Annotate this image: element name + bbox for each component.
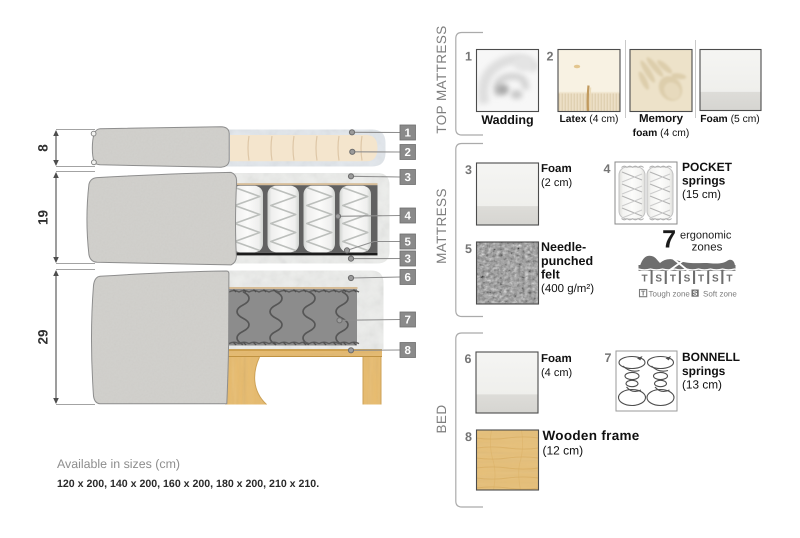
svg-text:T: T bbox=[670, 274, 676, 285]
svg-text:T: T bbox=[642, 274, 648, 285]
svg-text:Available in sizes (cm): Available in sizes (cm) bbox=[57, 457, 180, 471]
svg-text:springs: springs bbox=[682, 364, 726, 378]
svg-text:19: 19 bbox=[36, 210, 51, 225]
svg-text:POCKET: POCKET bbox=[682, 160, 733, 174]
svg-text:S: S bbox=[693, 291, 698, 298]
svg-text:(13 cm): (13 cm) bbox=[682, 377, 722, 391]
svg-text:felt: felt bbox=[541, 267, 561, 281]
svg-text:3: 3 bbox=[465, 163, 472, 177]
svg-text:6: 6 bbox=[404, 272, 410, 284]
svg-text:3: 3 bbox=[404, 254, 410, 266]
svg-text:foam (4 cm): foam (4 cm) bbox=[633, 128, 690, 139]
svg-text:7: 7 bbox=[605, 351, 612, 365]
svg-text:7: 7 bbox=[404, 315, 410, 327]
svg-text:BONNELL: BONNELL bbox=[682, 350, 740, 364]
svg-text:MATTRESS: MATTRESS bbox=[434, 188, 449, 264]
svg-text:S: S bbox=[684, 274, 691, 285]
svg-text:8: 8 bbox=[404, 345, 411, 357]
svg-text:TOP MATTRESS: TOP MATTRESS bbox=[434, 25, 449, 133]
svg-text:4: 4 bbox=[404, 211, 411, 223]
svg-text:5: 5 bbox=[404, 237, 411, 249]
svg-text:Soft zone: Soft zone bbox=[703, 290, 737, 299]
svg-text:Memory: Memory bbox=[639, 113, 684, 125]
svg-text:BED: BED bbox=[434, 405, 449, 434]
svg-text:5: 5 bbox=[465, 242, 472, 256]
svg-text:ergonomic: ergonomic bbox=[680, 230, 732, 242]
svg-text:springs: springs bbox=[682, 174, 726, 188]
svg-text:8: 8 bbox=[465, 430, 472, 444]
svg-text:2: 2 bbox=[547, 50, 554, 64]
svg-text:(12 cm): (12 cm) bbox=[543, 444, 584, 458]
svg-text:Foam: Foam bbox=[541, 353, 572, 365]
svg-text:Wadding: Wadding bbox=[481, 113, 533, 127]
svg-text:T: T bbox=[641, 291, 646, 298]
svg-text:120 x 200, 140 x 200, 160 x 20: 120 x 200, 140 x 200, 160 x 200, 180 x 2… bbox=[57, 478, 319, 490]
svg-text:(15 cm): (15 cm) bbox=[682, 189, 721, 201]
svg-text:Tough zone: Tough zone bbox=[649, 290, 691, 299]
svg-text:T: T bbox=[726, 274, 732, 285]
svg-text:7: 7 bbox=[662, 226, 676, 254]
svg-text:2: 2 bbox=[404, 147, 410, 159]
svg-text:(400 g/m²): (400 g/m²) bbox=[541, 283, 594, 295]
svg-text:Needle-: Needle- bbox=[541, 240, 586, 254]
svg-text:3: 3 bbox=[404, 172, 410, 184]
svg-text:punched: punched bbox=[541, 254, 593, 268]
svg-text:Wooden frame: Wooden frame bbox=[543, 428, 640, 443]
svg-text:zones: zones bbox=[692, 242, 723, 254]
svg-text:S: S bbox=[712, 274, 719, 285]
svg-text:4: 4 bbox=[604, 162, 611, 176]
svg-text:1: 1 bbox=[404, 128, 411, 140]
svg-text:Latex (4 cm): Latex (4 cm) bbox=[560, 114, 619, 125]
svg-text:Foam (5 cm): Foam (5 cm) bbox=[700, 114, 760, 125]
svg-text:(2 cm): (2 cm) bbox=[541, 177, 572, 189]
svg-text:Foam: Foam bbox=[541, 163, 572, 175]
svg-text:29: 29 bbox=[36, 329, 51, 344]
svg-text:T: T bbox=[698, 274, 704, 285]
svg-text:S: S bbox=[655, 274, 662, 285]
svg-text:8: 8 bbox=[36, 144, 51, 152]
svg-text:1: 1 bbox=[465, 50, 472, 64]
svg-text:(4 cm): (4 cm) bbox=[541, 367, 572, 379]
svg-text:6: 6 bbox=[465, 352, 472, 366]
